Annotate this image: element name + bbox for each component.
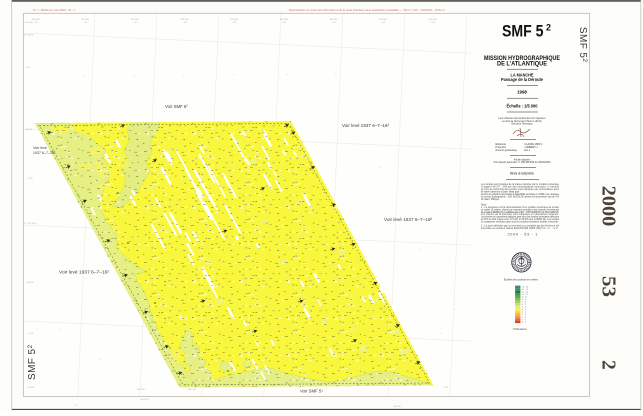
svg-text:Profondeurs: Profondeurs xyxy=(513,328,527,331)
svg-text:360 000: 360 000 xyxy=(188,389,197,391)
svg-text:+ 30: + 30 xyxy=(282,22,287,24)
svg-text:-10 _ -12: -10 _ -12 xyxy=(522,294,528,296)
svg-text:Échelle : 1/5 000: Échelle : 1/5 000 xyxy=(507,101,538,108)
svg-text:Directeur Technique: Directeur Technique xyxy=(511,123,533,126)
svg-text:-9 _ -10: -9 _ -10 xyxy=(522,297,528,299)
svg-text:+ 30: + 30 xyxy=(133,22,138,24)
svg-text:400 000: 400 000 xyxy=(379,19,388,21)
svg-text:42 000: 42 000 xyxy=(28,387,35,389)
svg-text:Passage de la Déroute: Passage de la Déroute xyxy=(501,77,543,82)
svg-text:390 000: 390 000 xyxy=(329,19,338,21)
svg-text:Voir levé: Voir levé xyxy=(33,146,47,150)
svg-text:Voir SMF 52: Voir SMF 52 xyxy=(165,104,188,109)
svg-text:1937 6–7–16²: 1937 6–7–16² xyxy=(33,151,56,155)
svg-text:Minute de bathymétrie: Minute de bathymétrie xyxy=(510,172,534,176)
svg-text:+ 30: + 30 xyxy=(331,22,336,24)
svg-text:53: 53 xyxy=(598,276,619,297)
svg-text:-14 _ -16: -14 _ -16 xyxy=(522,289,528,291)
svg-text:-3 _ -4: -3 _ -4 xyxy=(522,312,527,314)
svg-text:44 000: 44 000 xyxy=(26,129,33,131)
svg-text:Voir levé 1937 6–7–16²: Voir levé 1937 6–7–16² xyxy=(342,123,390,128)
svg-text:Voir SMF 51: Voir SMF 51 xyxy=(300,388,323,393)
svg-text:Voir levé 1937 6–7–16²: Voir levé 1937 6–7–16² xyxy=(59,270,110,275)
svg-text:+ 4 20: + 4 20 xyxy=(27,178,34,180)
svg-text:-1 _ -2: -1 _ -2 xyxy=(522,317,527,319)
svg-text:57° 52′ 30 N: 57° 52′ 30 N xyxy=(24,223,36,225)
svg-text:-2 _ -3: -2 _ -3 xyxy=(522,314,527,316)
svg-text:Voir rapport particulier n° 28: Voir rapport particulier n° 280-M/HOM du… xyxy=(494,161,552,164)
svg-text:insonifiée au sondeur latéral: insonifiée au sondeur latéral EGG/DF/QM … xyxy=(481,227,559,230)
svg-text:350 000: 350 000 xyxy=(131,19,140,21)
svg-text:Numéro géodésique: Numéro géodésique xyxy=(496,149,518,152)
svg-text:350 000: 350 000 xyxy=(137,389,146,391)
svg-text:E/1.1: E/1.1 xyxy=(525,149,531,152)
svg-text:340 000: 340 000 xyxy=(81,19,90,21)
svg-text:Échelle des couleurs en mètres: Échelle des couleurs en mètres xyxy=(504,278,539,281)
svg-text:2: 2 xyxy=(546,23,551,33)
svg-text:SMF 52: SMF 52 xyxy=(577,27,588,62)
svg-text:SMF 52: SMF 52 xyxy=(27,345,38,380)
svg-text:360 000: 360 000 xyxy=(180,19,189,21)
svg-text:0 _ -1: 0 _ -1 xyxy=(522,319,526,321)
svg-text:DE L’ATLANTIQUE: DE L’ATLANTIQUE xyxy=(497,61,547,68)
svg-text:43 000: 43 000 xyxy=(27,282,34,284)
svg-text:+1 _ 0: +1 _ 0 xyxy=(522,322,527,324)
svg-text:Reproduction et vente des info: Reproduction et vente des informations d… xyxy=(289,8,445,12)
svg-text:-7 _ -8: -7 _ -8 xyxy=(522,302,527,304)
svg-text:2: 2 xyxy=(598,360,619,370)
svg-text:Voir 53 2: Voir 53 2 xyxy=(140,398,149,401)
svg-text:410 000: 410 000 xyxy=(429,19,438,21)
svg-text:-5 _ -6: -5 _ -6 xyxy=(522,307,527,309)
svg-text:370 000: 370 000 xyxy=(230,19,239,21)
svg-text:360 00: 360 00 xyxy=(394,406,401,408)
svg-text:330 000: 330 000 xyxy=(32,19,41,21)
svg-text:-6 _ -7: -6 _ -7 xyxy=(522,304,527,306)
svg-text:57° 30′ N: 57° 30′ N xyxy=(24,35,33,37)
svg-text:-12 _ -14: -12 _ -14 xyxy=(522,292,528,294)
svg-text:+ 30: + 30 xyxy=(431,22,436,24)
svg-text:-8 _ -9: -8 _ -9 xyxy=(522,299,527,301)
svg-text:+ 30: + 30 xyxy=(182,22,187,24)
svg-text:-4 _ -5: -4 _ -5 xyxy=(522,309,527,311)
svg-text:380 000: 380 000 xyxy=(280,19,289,21)
svg-text:+ 44 000: + 44 000 xyxy=(24,22,33,24)
svg-text:2000 - 53 - 1: 2000 - 53 - 1 xyxy=(507,232,538,236)
svg-text:+ 5 30: + 5 30 xyxy=(27,333,34,335)
svg-text:-16 _ -18: -16 _ -18 xyxy=(522,287,528,289)
svg-text:Voir levé 1937 6–7–16²: Voir levé 1937 6–7–16² xyxy=(384,217,433,222)
svg-text:2000: 2000 xyxy=(598,186,619,227)
svg-text:SMF 5: SMF 5 xyxy=(502,21,544,40)
svg-text:de Saint- Philippe.: de Saint- Philippe. xyxy=(481,198,500,201)
svg-text:en caractères verticaux gras s: en caractères verticaux gras sont les so… xyxy=(481,221,559,224)
svg-text:1998: 1998 xyxy=(517,90,527,95)
